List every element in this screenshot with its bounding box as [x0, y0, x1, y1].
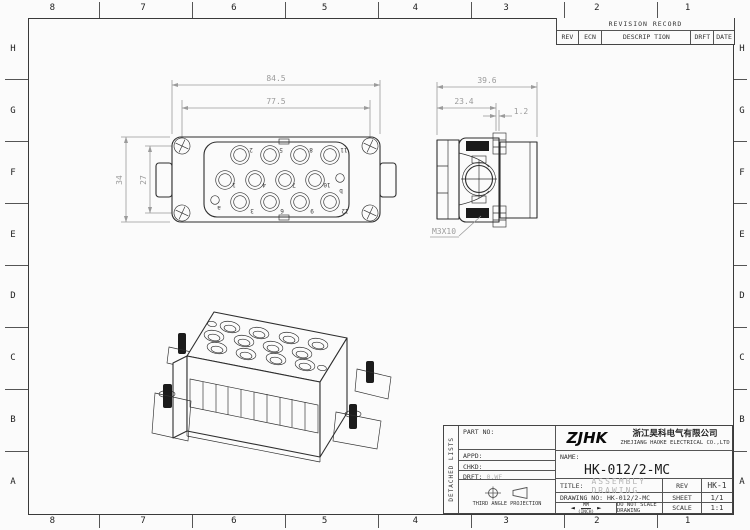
no-scale-note: DO NOT SCALE DRAWING [616, 503, 662, 513]
part-no-label: PART NO: [463, 428, 494, 436]
company-name-en: ZHEJIANG HAOKE ELECTRICAL CO.,LTD [618, 440, 732, 447]
svg-text:a: a [217, 204, 221, 211]
dim-39-6: 39.6 [477, 76, 496, 85]
svg-text:1: 1 [232, 181, 236, 188]
dim-1-2: 1.2 [514, 107, 529, 116]
revision-table-title: REVISION RECORD [557, 18, 734, 31]
screw-top [466, 141, 489, 151]
company-logo: ZJHK [556, 429, 618, 447]
rev-value: HK-1 [702, 479, 732, 492]
sheet-value: 1/1 [702, 493, 732, 502]
svg-text:12: 12 [341, 207, 349, 214]
units-mm: MM [581, 502, 591, 509]
col-header-description: DESCRIP TION [602, 31, 691, 44]
name-row: NAME: HK-012/2-MC [556, 451, 732, 479]
projection-label: THIRD ANGLE PROJECTION [473, 501, 542, 507]
dim-77-5: 77.5 [266, 97, 285, 106]
units-inch: (INCH) [578, 510, 594, 515]
dim-27: 27 [139, 175, 148, 185]
col-header-ecn: ECN [579, 31, 602, 44]
scale-value: 1:1 [702, 503, 732, 513]
front-view: 84.5 77.5 34 27 [115, 74, 396, 224]
screw-bottom [466, 208, 489, 218]
svg-text:8: 8 [309, 146, 313, 153]
thread-callout: M3X10 [432, 227, 456, 236]
arrow-left-icon: ◄ [571, 505, 575, 512]
title-block-approvals: PART NO: APPD: CHKD: DRFT: 0.WF THIRD AN… [459, 426, 556, 513]
part-no-row: PART NO: [459, 426, 555, 450]
units-row: ◄ MM (INCH) ► DO NOT SCALE DRAWING SCALE… [556, 503, 732, 513]
svg-text:7: 7 [292, 181, 296, 188]
svg-text:5: 5 [279, 146, 283, 153]
drawing-no-value: HK-012/2-MC [607, 494, 650, 502]
detached-lists-strip: DETACHED LISTS [444, 426, 459, 513]
company-names: 浙江昊科电气有限公司 ZHEJIANG HAOKE ELECTRICAL CO.… [618, 429, 732, 447]
rev-label: REV [662, 479, 702, 492]
dim-84-5: 84.5 [266, 74, 285, 83]
drft-row: DRFT: 0.WF [459, 471, 555, 480]
dim-34: 34 [115, 175, 124, 185]
svg-text:6: 6 [280, 207, 284, 214]
title-label: TITLE: [560, 482, 583, 490]
name-label: NAME: [560, 453, 732, 461]
svg-text:3: 3 [250, 207, 254, 214]
svg-text:b: b [339, 187, 343, 194]
units-stack: MM (INCH) [578, 501, 594, 516]
sheet-label: SHEET [662, 493, 702, 502]
side-view: 39.6 23.4 1.2 [430, 76, 537, 237]
isometric-view [152, 312, 391, 462]
company-header: ZJHK 浙江昊科电气有限公司 ZHEJIANG HAOKE ELECTRICA… [556, 426, 732, 451]
col-header-date: DATE [714, 31, 734, 44]
chkd-label: CHKD: [463, 463, 483, 471]
appd-label: APPD: [463, 452, 483, 460]
projection-row: THIRD ANGLE PROJECTION [459, 480, 555, 513]
company-name-cn: 浙江昊科电气有限公司 [618, 429, 732, 440]
svg-text:10: 10 [323, 181, 331, 188]
title-value: ASSEMBLY DRAWING [591, 477, 662, 495]
title-block: DETACHED LISTS PART NO: APPD: CHKD: DRFT… [443, 425, 733, 514]
scale-label: SCALE [662, 503, 702, 513]
svg-text:9: 9 [310, 207, 314, 214]
arrow-right-icon: ► [597, 505, 601, 512]
col-header-rev: REV [557, 31, 579, 44]
revision-table-headers: REV ECN DESCRIP TION DRFT DATE [557, 31, 734, 44]
chkd-row: CHKD: [459, 461, 555, 471]
drawing-sheet: 8 7 6 5 4 3 2 1 8 7 6 5 4 3 2 1 H G F E … [0, 0, 750, 530]
third-angle-projection-icon [481, 486, 533, 500]
svg-text:11: 11 [340, 146, 348, 153]
revision-table: REVISION RECORD REV ECN DESCRIP TION DRF… [556, 18, 735, 45]
title-block-main: ZJHK 浙江昊科电气有限公司 ZHEJIANG HAOKE ELECTRICA… [556, 426, 732, 513]
svg-text:4: 4 [262, 181, 266, 188]
title-row: TITLE: ASSEMBLY DRAWING REV HK-1 [556, 479, 732, 493]
col-header-drft: DRFT [691, 31, 714, 44]
units-cell: ◄ MM (INCH) ► [556, 503, 616, 513]
detached-lists-label: DETACHED LISTS [448, 437, 455, 502]
dim-23-4: 23.4 [454, 97, 473, 106]
svg-text:2: 2 [249, 146, 253, 153]
appd-row: APPD: [459, 450, 555, 461]
